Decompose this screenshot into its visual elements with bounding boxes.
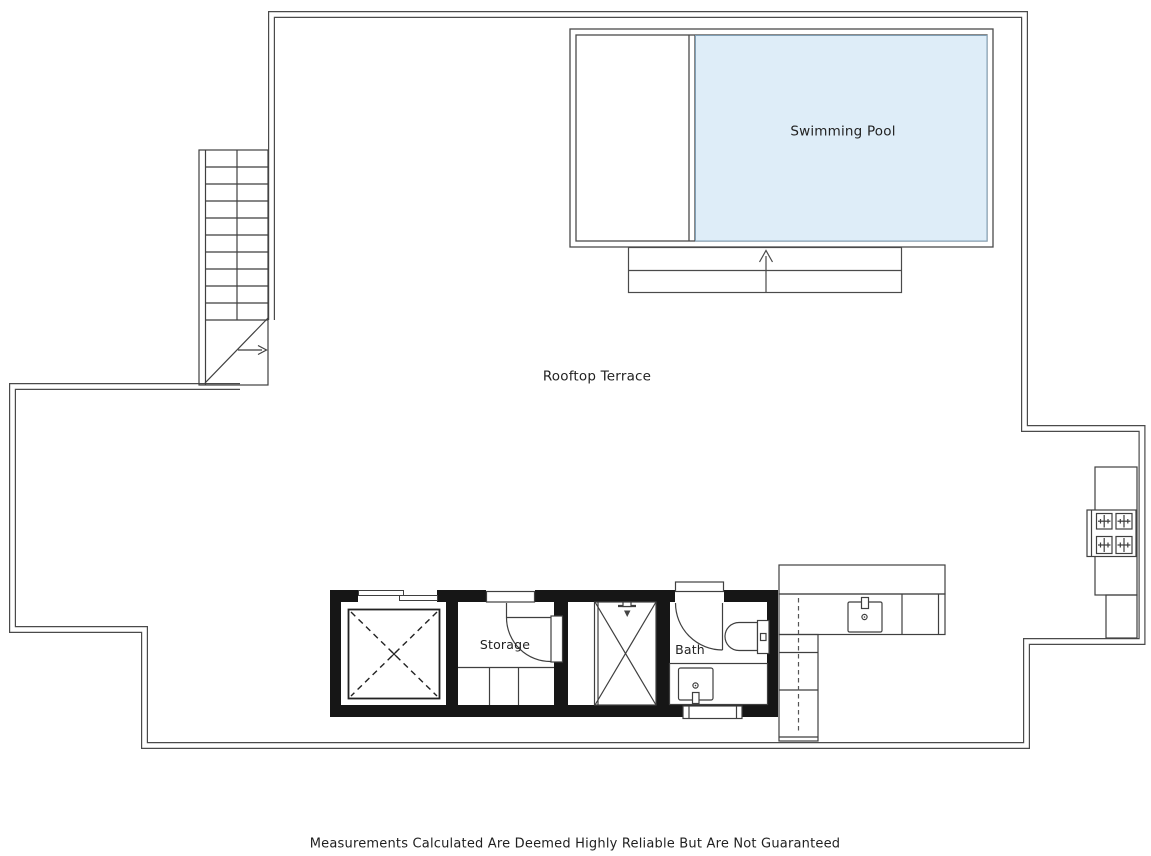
kitchen-counter-icon (779, 565, 945, 741)
storage-door-threshold (487, 592, 535, 603)
pool-house (570, 29, 993, 247)
shower-room (568, 602, 656, 705)
bar-counter (779, 565, 945, 594)
rooftop-terrace-label: Rooftop Terrace (543, 370, 651, 384)
swimming-pool-label: Swimming Pool (790, 125, 895, 139)
bath-vanity (670, 664, 768, 705)
kitchen-sink-icon (848, 598, 882, 633)
floor-plan-page: Swimming Pool Rooftop Terrace Storage Ba… (0, 0, 1151, 856)
staircase-icon (199, 150, 268, 385)
storage-label: Storage (480, 639, 530, 652)
bbq-counter (1087, 467, 1137, 638)
floor-plan-drawing (0, 0, 1151, 856)
bath-sink-icon (679, 668, 714, 704)
measurements-disclaimer: Measurements Calculated Are Deemed Highl… (310, 838, 841, 851)
towel-radiator-icon (683, 706, 742, 719)
bbq-hob-icon (1087, 510, 1136, 557)
bath-label: Bath (675, 644, 705, 657)
pool-steps (629, 248, 902, 293)
stair-direction-arrow-icon (238, 346, 267, 355)
pool-entry-arrow-icon (760, 251, 773, 293)
toilet-icon (725, 621, 769, 654)
